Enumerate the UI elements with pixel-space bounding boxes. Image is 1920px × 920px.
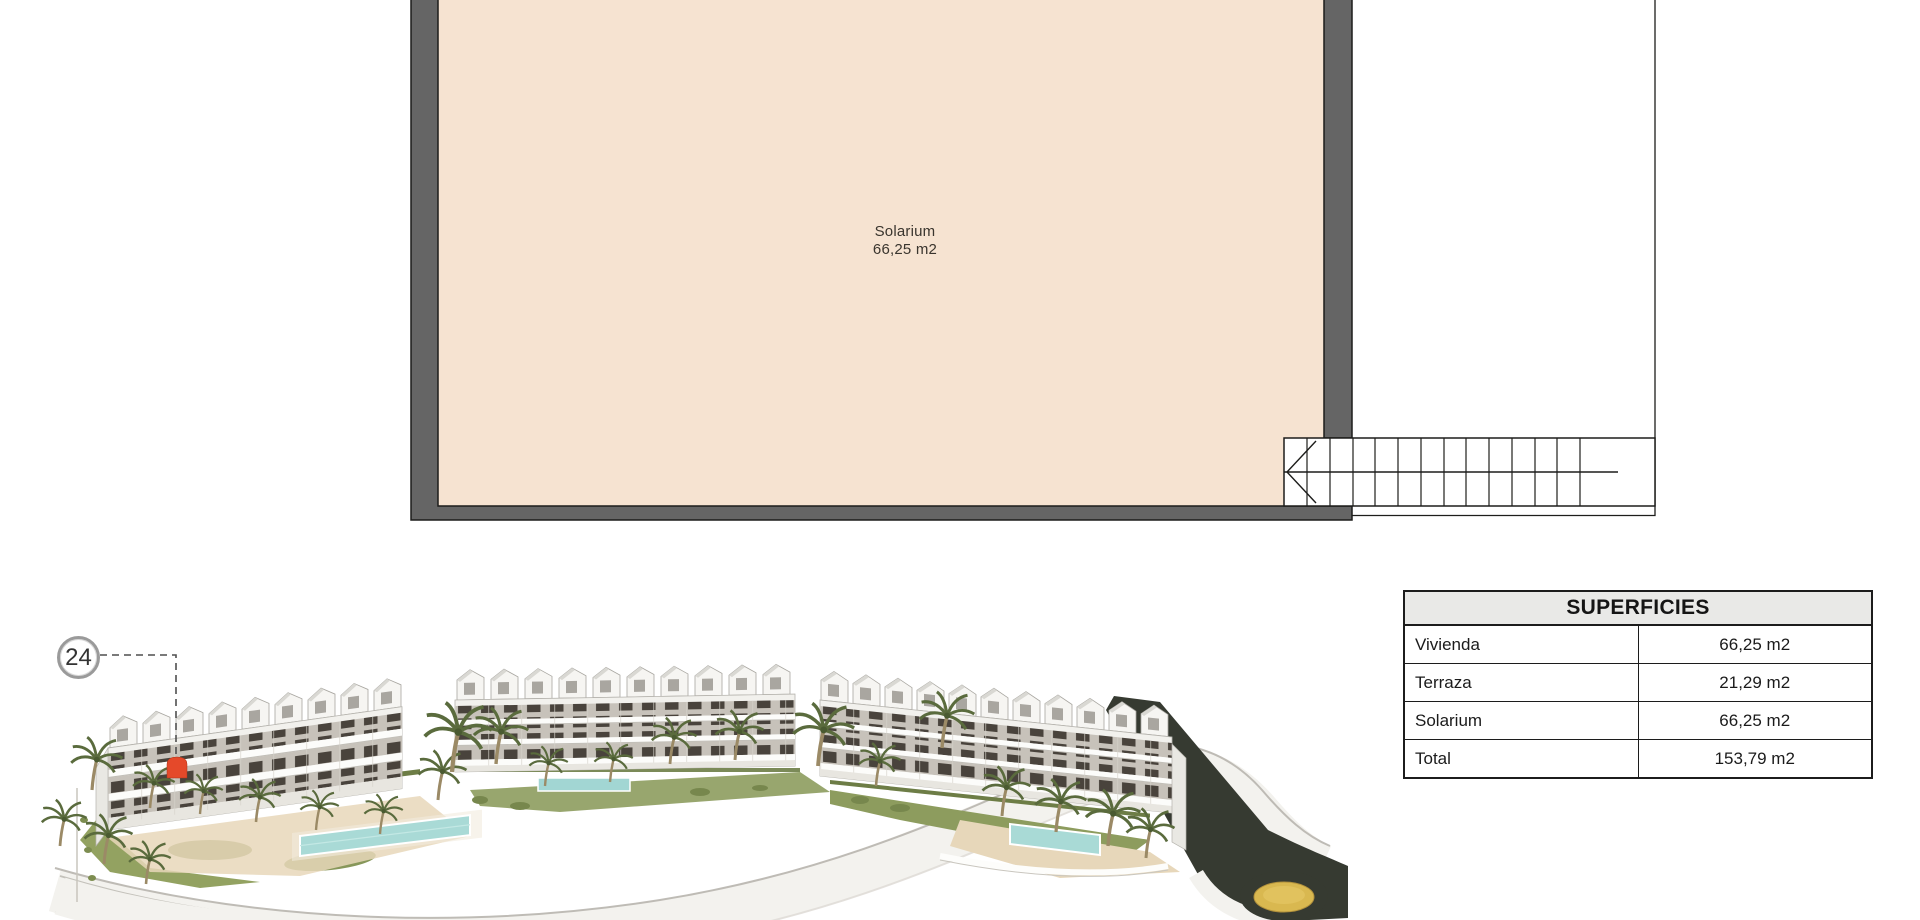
row-value: 66,25 m2 bbox=[1638, 625, 1872, 664]
row-value: 66,25 m2 bbox=[1638, 702, 1872, 740]
building-3 bbox=[820, 670, 1172, 813]
row-value: 21,29 m2 bbox=[1638, 664, 1872, 702]
row-label: Total bbox=[1404, 740, 1638, 779]
room-label: Solarium 66,25 m2 bbox=[805, 223, 1005, 259]
row-label: Terraza bbox=[1404, 664, 1638, 702]
pool-middle bbox=[538, 778, 630, 791]
row-value: 153,79 m2 bbox=[1638, 740, 1872, 779]
plan-sheet: Solarium 66,25 m2 24 SUPERFICIES Viviend… bbox=[0, 0, 1920, 920]
room-name: Solarium bbox=[805, 223, 1005, 241]
floor-plan bbox=[411, 0, 1655, 520]
unit-number-badge: 24 bbox=[57, 636, 100, 679]
floor-plan-and-render-graphic bbox=[0, 0, 1920, 920]
highlighted-unit-marker bbox=[167, 757, 187, 778]
building-render bbox=[42, 655, 1348, 920]
wall-right bbox=[1324, 0, 1352, 438]
table-row-solarium: Solarium 66,25 m2 bbox=[1404, 702, 1872, 740]
room-area: 66,25 m2 bbox=[805, 241, 1005, 259]
staircase bbox=[1284, 438, 1655, 506]
superficies-table: SUPERFICIES Vivienda 66,25 m2 Terraza 21… bbox=[1403, 590, 1873, 779]
table-title: SUPERFICIES bbox=[1404, 591, 1872, 625]
building-3-end-wall bbox=[1172, 744, 1186, 850]
row-label: Solarium bbox=[1404, 702, 1638, 740]
table-row-vivienda: Vivienda 66,25 m2 bbox=[1404, 625, 1872, 664]
row-label: Vivienda bbox=[1404, 625, 1638, 664]
table-row-total: Total 153,79 m2 bbox=[1404, 740, 1872, 779]
table-row-terraza: Terraza 21,29 m2 bbox=[1404, 664, 1872, 702]
unit-number: 24 bbox=[65, 644, 92, 672]
